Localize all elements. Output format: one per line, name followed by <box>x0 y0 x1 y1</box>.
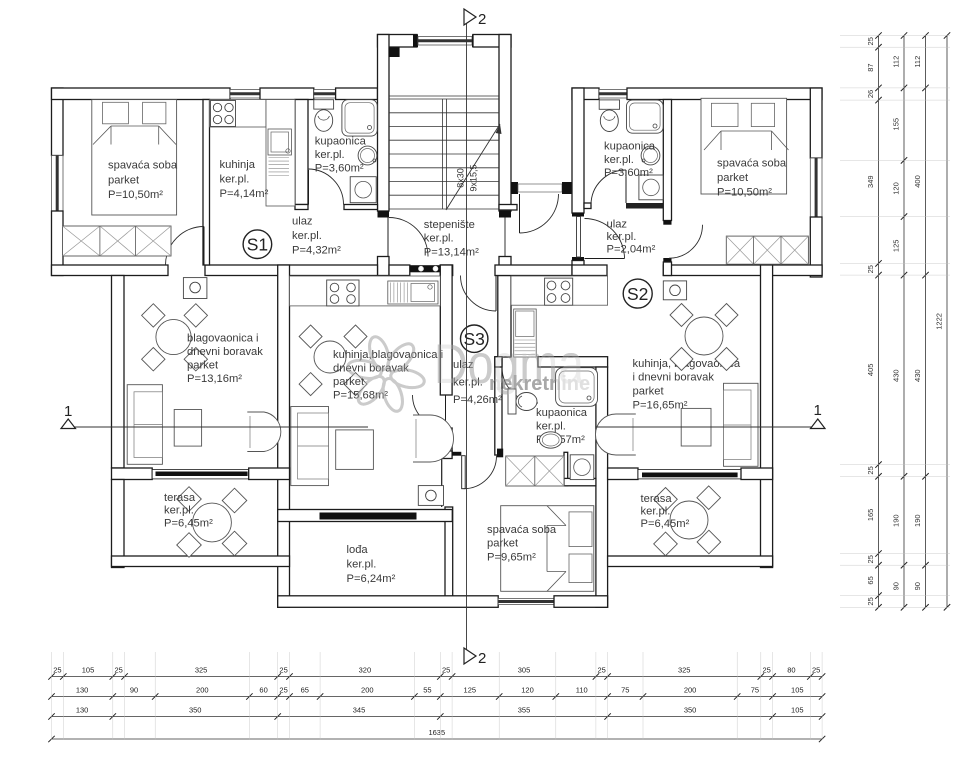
svg-text:2: 2 <box>478 11 486 28</box>
svg-text:P=4,26m²: P=4,26m² <box>453 394 502 406</box>
svg-text:1635: 1635 <box>428 728 445 737</box>
svg-text:P=6,24m²: P=6,24m² <box>347 573 396 585</box>
svg-text:80: 80 <box>787 666 795 675</box>
svg-text:lođa: lođa <box>347 544 369 556</box>
svg-text:25: 25 <box>866 466 875 474</box>
svg-text:P=3,60m²: P=3,60m² <box>315 163 364 175</box>
svg-text:90: 90 <box>913 582 922 590</box>
svg-text:350: 350 <box>684 706 697 715</box>
svg-text:325: 325 <box>678 666 691 675</box>
svg-text:25: 25 <box>279 666 287 675</box>
svg-text:P=6,45m²: P=6,45m² <box>164 518 213 530</box>
svg-text:spavaća soba: spavaća soba <box>717 158 787 170</box>
svg-text:2: 2 <box>478 650 486 667</box>
svg-text:1: 1 <box>64 403 72 420</box>
svg-text:130: 130 <box>76 706 89 715</box>
svg-text:stepenište: stepenište <box>424 219 475 231</box>
svg-text:parket: parket <box>717 172 749 184</box>
svg-text:terasa: terasa <box>164 492 196 504</box>
svg-text:kupaonica: kupaonica <box>604 141 656 153</box>
svg-text:25: 25 <box>598 666 606 675</box>
svg-text:25: 25 <box>279 686 287 695</box>
svg-text:nekretnine: nekretnine <box>489 373 590 395</box>
svg-text:430: 430 <box>892 369 901 382</box>
svg-text:190: 190 <box>913 514 922 527</box>
svg-text:349: 349 <box>866 175 875 188</box>
svg-text:26: 26 <box>866 90 875 98</box>
svg-text:9x15,5: 9x15,5 <box>469 164 479 191</box>
svg-text:parket: parket <box>187 360 219 372</box>
svg-text:120: 120 <box>892 182 901 195</box>
svg-text:blagovaonica i: blagovaonica i <box>187 333 259 345</box>
svg-text:25: 25 <box>866 597 875 605</box>
svg-text:P=10,50m²: P=10,50m² <box>108 189 163 201</box>
svg-text:350: 350 <box>189 706 202 715</box>
svg-text:P=4,14m²: P=4,14m² <box>220 188 269 200</box>
svg-text:P=13,14m²: P=13,14m² <box>424 246 479 258</box>
svg-text:112: 112 <box>892 56 901 68</box>
svg-text:1222: 1222 <box>935 313 944 330</box>
svg-text:dnevni boravak: dnevni boravak <box>187 346 263 358</box>
svg-text:25: 25 <box>442 666 450 675</box>
svg-text:kupaonica: kupaonica <box>536 407 588 419</box>
svg-text:430: 430 <box>913 369 922 382</box>
svg-text:S2: S2 <box>627 284 648 304</box>
svg-text:ker.pl.: ker.pl. <box>607 231 637 243</box>
svg-text:125: 125 <box>464 686 477 695</box>
svg-text:405: 405 <box>866 364 875 377</box>
svg-text:parket: parket <box>487 538 519 550</box>
svg-text:305: 305 <box>518 666 531 675</box>
svg-text:120: 120 <box>521 686 534 695</box>
svg-text:90: 90 <box>892 582 901 590</box>
svg-text:355: 355 <box>518 706 531 715</box>
svg-text:105: 105 <box>791 686 804 695</box>
svg-text:165: 165 <box>866 509 875 522</box>
svg-text:kupaonica: kupaonica <box>315 135 367 147</box>
svg-text:ker.pl.: ker.pl. <box>536 421 566 433</box>
svg-text:P=2,04m²: P=2,04m² <box>607 243 656 255</box>
svg-text:200: 200 <box>196 686 209 695</box>
svg-text:ker.pl.: ker.pl. <box>164 505 194 517</box>
svg-text:25: 25 <box>866 555 875 563</box>
svg-text:ker.pl.: ker.pl. <box>641 506 671 518</box>
svg-text:1: 1 <box>814 402 822 419</box>
svg-text:320: 320 <box>359 666 372 675</box>
svg-text:S1: S1 <box>247 235 268 255</box>
svg-text:kuhinja: kuhinja <box>220 159 256 171</box>
svg-text:105: 105 <box>791 706 804 715</box>
svg-text:125: 125 <box>892 240 901 253</box>
svg-text:155: 155 <box>892 118 901 131</box>
svg-text:130: 130 <box>76 686 89 695</box>
svg-text:25: 25 <box>763 666 771 675</box>
svg-text:P=16,65m²: P=16,65m² <box>633 399 688 411</box>
svg-text:P=4,32m²: P=4,32m² <box>292 245 341 257</box>
svg-text:ulaz: ulaz <box>607 218 628 230</box>
svg-text:25: 25 <box>866 265 875 273</box>
svg-text:105: 105 <box>82 666 95 675</box>
svg-text:112: 112 <box>913 56 922 68</box>
svg-text:terasa: terasa <box>641 493 673 505</box>
svg-text:75: 75 <box>751 686 759 695</box>
svg-text:ker.pl.: ker.pl. <box>315 149 345 161</box>
svg-text:325: 325 <box>195 666 208 675</box>
svg-text:parket: parket <box>108 174 140 186</box>
svg-text:P=10,50m²: P=10,50m² <box>717 187 772 199</box>
svg-text:75: 75 <box>621 686 629 695</box>
svg-text:87: 87 <box>866 63 875 71</box>
svg-text:ker.pl.: ker.pl. <box>220 174 250 186</box>
svg-text:200: 200 <box>684 686 697 695</box>
svg-text:ker.pl.: ker.pl. <box>347 559 377 571</box>
svg-text:200: 200 <box>361 686 374 695</box>
svg-text:ker.pl.: ker.pl. <box>292 230 322 242</box>
svg-text:25: 25 <box>115 666 123 675</box>
svg-text:parket: parket <box>633 385 665 397</box>
svg-text:25: 25 <box>866 37 875 45</box>
svg-text:spavaća soba: spavaća soba <box>487 524 557 536</box>
svg-text:190: 190 <box>892 514 901 527</box>
svg-text:25: 25 <box>53 666 61 675</box>
svg-text:8x30: 8x30 <box>456 168 466 188</box>
svg-text:P=6,45m²: P=6,45m² <box>641 518 690 530</box>
svg-text:i dnevni boravak: i dnevni boravak <box>633 372 715 384</box>
svg-text:65: 65 <box>301 686 309 695</box>
svg-text:55: 55 <box>423 686 431 695</box>
svg-text:P=3,60m²: P=3,60m² <box>604 167 653 179</box>
svg-text:25: 25 <box>812 666 820 675</box>
svg-text:60: 60 <box>259 686 267 695</box>
svg-text:spavaća soba: spavaća soba <box>108 160 178 172</box>
svg-text:ulaz: ulaz <box>292 216 313 228</box>
svg-text:P=13,16m²: P=13,16m² <box>187 373 242 385</box>
svg-text:65: 65 <box>866 576 875 584</box>
svg-text:ker.pl.: ker.pl. <box>424 233 454 245</box>
svg-text:90: 90 <box>130 686 138 695</box>
svg-text:400: 400 <box>913 175 922 188</box>
svg-text:ker.pl.: ker.pl. <box>604 154 634 166</box>
svg-text:345: 345 <box>353 706 366 715</box>
svg-text:110: 110 <box>576 686 588 695</box>
svg-text:P=9,65m²: P=9,65m² <box>487 551 536 563</box>
